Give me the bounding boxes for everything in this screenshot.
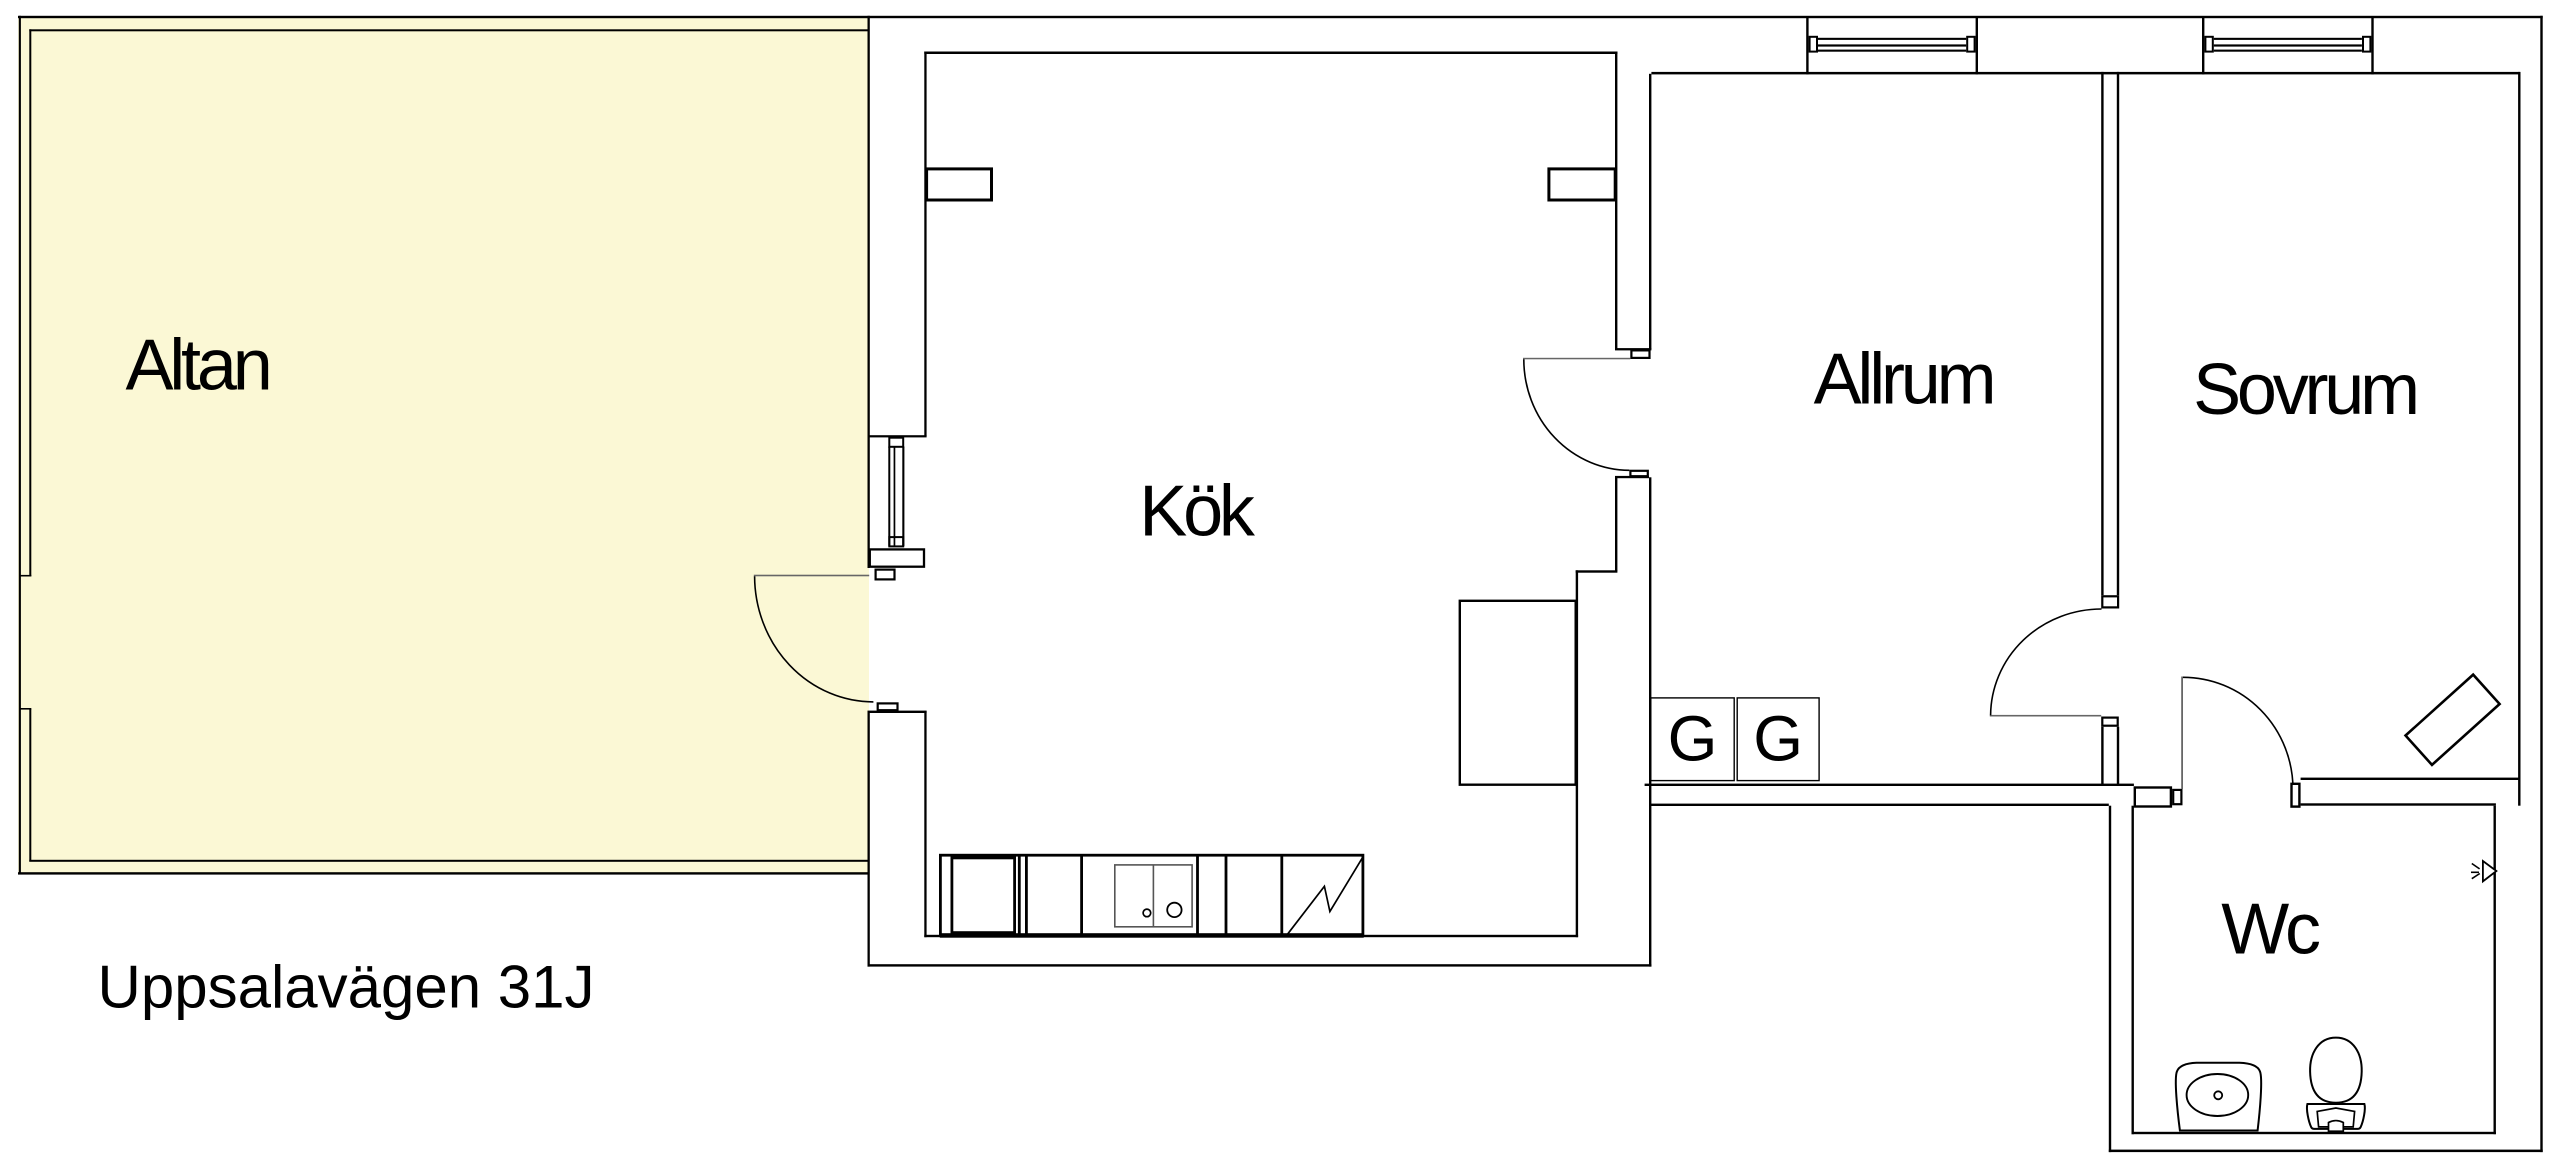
svg-text:Kök: Kök [1139,472,1256,552]
svg-text:Uppsalavägen 31J: Uppsalavägen 31J [98,954,595,1021]
svg-text:Altan: Altan [125,326,268,406]
svg-text:G: G [1753,702,1803,774]
svg-text:Wc: Wc [2221,890,2320,970]
svg-text:Sovrum: Sovrum [2193,350,2416,430]
svg-text:G: G [1668,702,1718,774]
svg-text:Allrum: Allrum [1814,340,1993,420]
